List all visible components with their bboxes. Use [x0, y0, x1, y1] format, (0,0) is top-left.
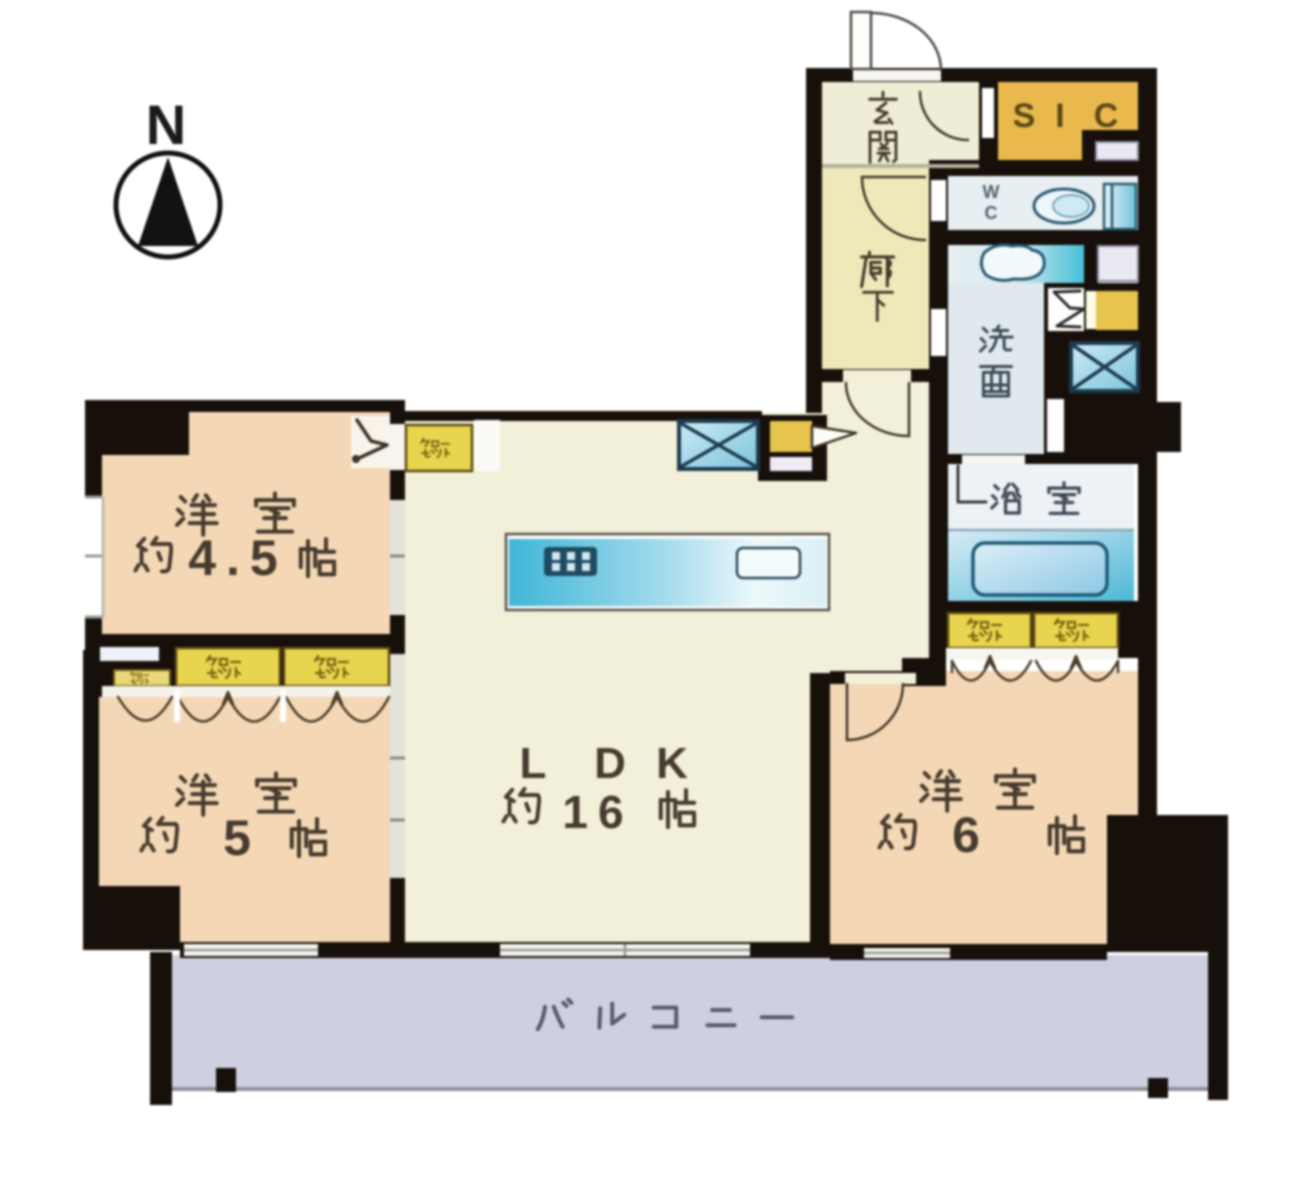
svg-text:K: K: [656, 739, 688, 788]
svg-text:D: D: [594, 739, 626, 788]
svg-text:W: W: [983, 182, 1000, 202]
svg-text:5: 5: [223, 810, 251, 866]
svg-text:C: C: [1094, 97, 1119, 135]
svg-text:S: S: [1013, 97, 1036, 135]
svg-text:4.5: 4.5: [188, 530, 288, 586]
svg-text:16: 16: [562, 786, 633, 838]
svg-text:N: N: [146, 93, 186, 156]
svg-text:C: C: [985, 203, 998, 223]
svg-text:L: L: [520, 739, 547, 788]
svg-text:6: 6: [952, 807, 980, 863]
svg-text:I: I: [1055, 97, 1064, 135]
